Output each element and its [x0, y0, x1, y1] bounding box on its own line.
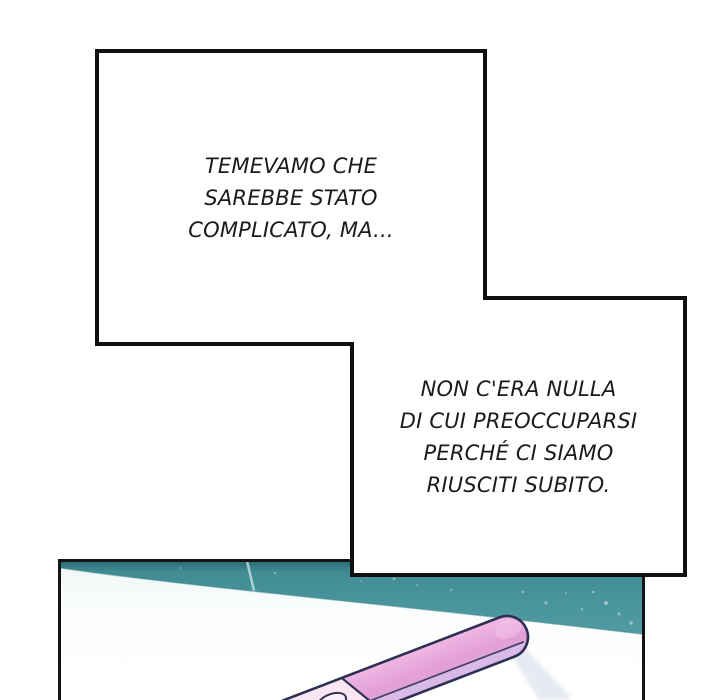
- caption-2-line-2: DI CUI PREOCCUPARSI: [400, 405, 638, 437]
- caption-2: NON C'ERA NULLA DI CUI PREOCCUPARSI PERC…: [352, 298, 685, 575]
- caption-1-line-3: COMPLICATO, MA...: [188, 214, 394, 246]
- caption-2-line-3: PERCHÉ CI SIAMO: [424, 437, 614, 469]
- comic-page: TEMEVAMO CHE SAREBBE STATO COMPLICATO, M…: [0, 0, 720, 700]
- caption-1-line-1: TEMEVAMO CHE: [205, 150, 377, 182]
- caption-1-line-2: SAREBBE STATO: [204, 182, 377, 214]
- caption-2-line-4: RIUSCITI SUBITO.: [427, 469, 611, 501]
- caption-2-line-1: NON C'ERA NULLA: [421, 373, 617, 405]
